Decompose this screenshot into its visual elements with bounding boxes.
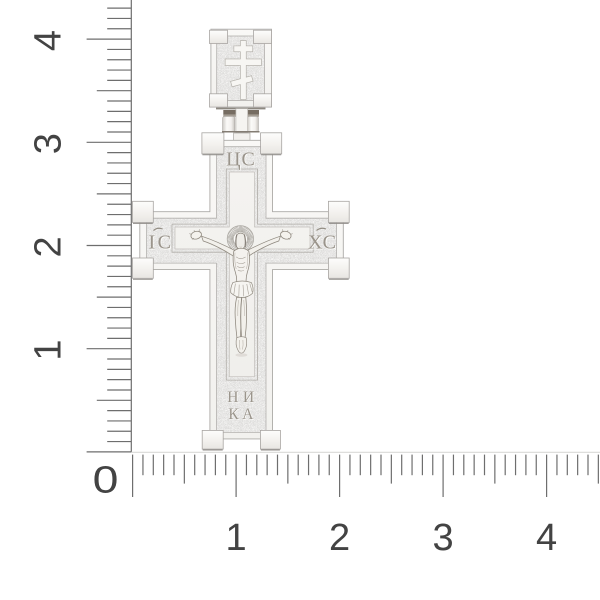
svg-text:4: 4	[28, 30, 70, 51]
svg-text:3: 3	[433, 517, 454, 559]
svg-text:КА: КА	[228, 406, 257, 423]
svg-text:3: 3	[28, 133, 70, 154]
svg-text:2: 2	[329, 517, 350, 559]
svg-text:1: 1	[226, 517, 247, 559]
svg-text:2: 2	[28, 236, 70, 257]
svg-text:4: 4	[536, 517, 557, 559]
svg-text:1: 1	[28, 340, 70, 361]
svg-text:IC: IC	[149, 232, 174, 254]
svg-text:НИ: НИ	[227, 389, 258, 406]
svg-text:ХС: ХС	[308, 232, 337, 254]
svg-text:0: 0	[93, 459, 119, 501]
svg-text:ЦС: ЦС	[226, 148, 256, 170]
